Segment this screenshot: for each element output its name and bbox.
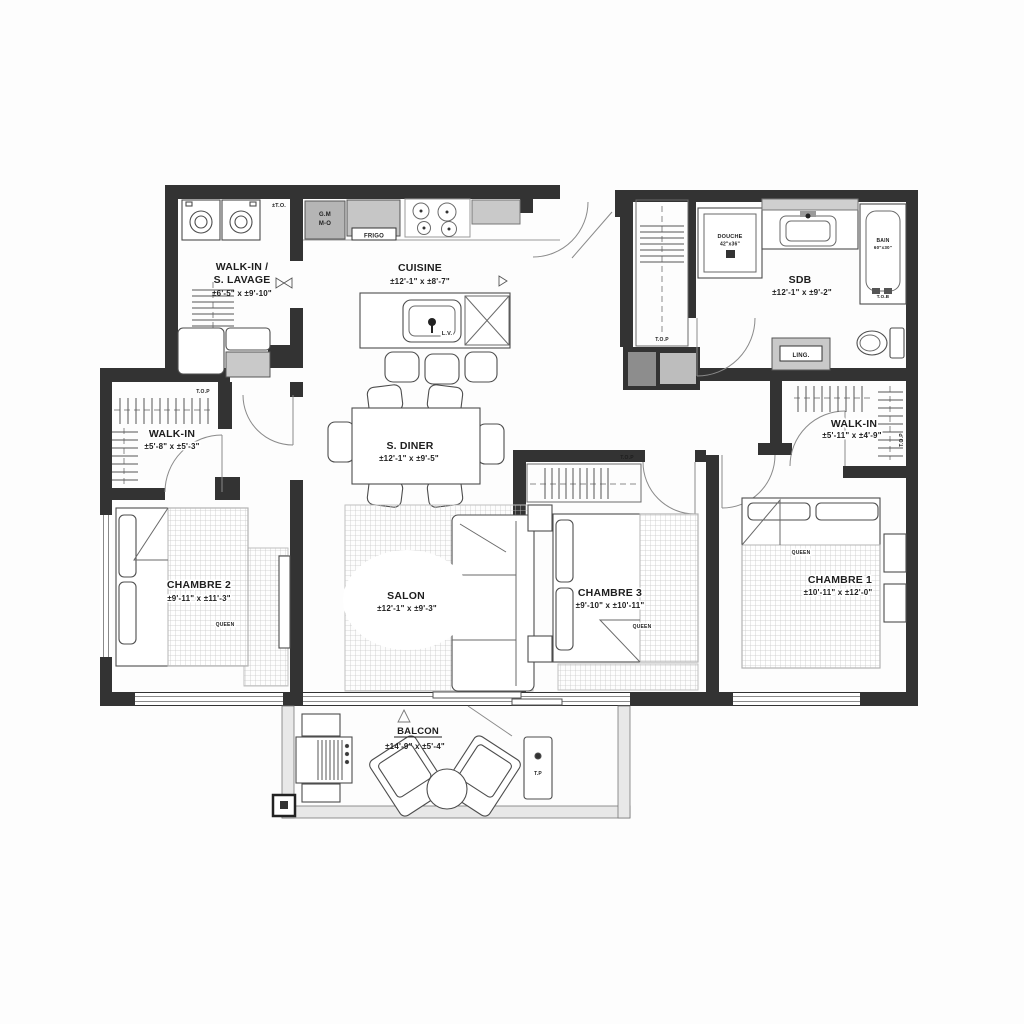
opening-marker (499, 276, 507, 286)
queen-label-chambre1: QUEEN (792, 550, 811, 556)
room-label-chambre2: CHAMBRE 2 (167, 579, 231, 591)
patio-table (427, 769, 467, 809)
microwave-label: M-O (319, 221, 331, 227)
dishwasher-label: L.V. (442, 331, 453, 337)
room-dims-cuisine: ±12'-1" x ±8'-7" (390, 277, 450, 286)
room-dims-sdb: ±12'-1" x ±9'-2" (772, 288, 832, 297)
room-label-balcon: BALCON (397, 726, 439, 737)
planter-box (524, 737, 552, 799)
room-dims-walkin-lavage: ±6'-5" x ±9'-10" (212, 289, 272, 298)
living-area (343, 505, 534, 691)
room-dims-chambre1: ±10'-11" x ±12'-0" (804, 588, 873, 597)
room-label-sdb: SDB (789, 274, 812, 286)
window-chambre2-bottom (135, 693, 283, 705)
bathtub-icon (860, 204, 906, 304)
toilet-icon (857, 328, 904, 358)
dresser (279, 556, 290, 648)
room-label-walkin-lavage: WALK-IN / (216, 261, 269, 273)
tob-label: T.O.B (877, 294, 890, 299)
room-dims-chambre3: ±9'-10" x ±10'-11" (576, 601, 645, 610)
patio-slider-leaf (512, 699, 562, 705)
top-label-walkin-left: T.O.P (196, 389, 210, 395)
room-dims-walkin-left: ±5'-8" x ±5'-3" (144, 442, 199, 451)
queen-label-chambre2: QUEEN (216, 622, 235, 628)
room-label-chambre1: CHAMBRE 1 (808, 574, 872, 586)
room-dims-salon: ±12'-1" x ±9'-3" (377, 604, 437, 613)
room-label-walkin-left: WALK-IN (149, 428, 195, 440)
kitchen (303, 199, 560, 384)
opening-marker (276, 278, 292, 288)
pantry-label: G.M (319, 212, 331, 218)
fridge-label: FRIGO (364, 234, 384, 240)
balcony-wall (282, 806, 630, 818)
stove-icon (405, 199, 470, 237)
pillow (119, 515, 136, 577)
storage-box (178, 328, 224, 374)
nightstand (884, 584, 906, 622)
room-label-sdiner: S. DINER (386, 440, 433, 452)
pillow (748, 503, 810, 520)
bar-stools (385, 352, 497, 384)
room-dims-balcon: ±14'-9" x ±5'-4" (385, 742, 445, 751)
room-label-walkin-lavage-2: S. LAVAGE (214, 274, 271, 286)
hall-closet (636, 200, 688, 346)
closet-chambre3 (527, 464, 641, 502)
floor-plan-page: { "plan": { "rooms": { "walkin_lavage": … (0, 0, 1024, 1024)
bathtub-label: BAIN (876, 238, 889, 244)
room-label-walkin-right: WALK-IN (831, 418, 877, 430)
floor-plan-svg: WALK-IN / S. LAVAGE ±6'-5" x ±9'-10" CUI… (0, 0, 1024, 1024)
chambre2-door (243, 395, 293, 445)
washer-dryer-icon (182, 200, 260, 240)
pillow (816, 503, 878, 520)
nightstand (884, 534, 906, 572)
planter-label: T.P (534, 771, 542, 777)
room-dims-chambre2: ±9'-11" x ±11'-3" (167, 594, 231, 603)
bathtub-size-label: 60"x30" (874, 245, 892, 250)
to-label: ±T.O. (272, 203, 286, 209)
top-label-hall: T.O.P (655, 337, 669, 343)
queen-label-chambre3: QUEEN (633, 624, 652, 630)
top-label-walkin-right: T.O.P (899, 433, 905, 447)
storage-box (226, 328, 270, 350)
bedroom3 (527, 464, 698, 690)
entry-door (533, 202, 612, 258)
window-chambre1-bottom (733, 693, 860, 705)
sdb-door (697, 318, 755, 376)
blanket (640, 514, 698, 662)
bbq-grill-icon (296, 714, 352, 802)
shower-size-label: 42"x36" (720, 242, 740, 248)
hangers-icon (798, 386, 862, 412)
pantry-microwave-cabinet (305, 201, 345, 239)
window-chambre2-left (100, 515, 112, 657)
kitchen-island (360, 293, 510, 348)
top-label-chambre3: T.O.P (620, 455, 634, 461)
nightstand (528, 505, 552, 531)
shower-label: DOUCHE (717, 234, 742, 240)
room-label-cuisine: CUISINE (398, 262, 442, 274)
door-swing-marker (398, 710, 410, 722)
nightstand (528, 636, 552, 662)
room-dims-sdiner: ±12'-1" x ±9'-5" (379, 454, 439, 463)
drain-icon (726, 250, 735, 258)
hangers-icon (112, 432, 138, 480)
patio-slider-leaf (433, 692, 521, 698)
room-label-chambre3: CHAMBRE 3 (578, 587, 642, 599)
hangers-icon (120, 398, 208, 424)
balcony-wall (618, 706, 630, 818)
blanket (742, 545, 880, 668)
linen-label: LING. (793, 353, 810, 359)
rug (558, 664, 698, 690)
room-label-salon: SALON (387, 590, 425, 602)
pillow (119, 582, 136, 644)
balcony (273, 706, 630, 818)
patio-door-band (303, 692, 630, 736)
storage-cabinet (226, 352, 270, 377)
pillow (556, 588, 573, 650)
pillow (556, 520, 573, 582)
counter-segment (472, 200, 520, 224)
chambre3-door (643, 462, 695, 517)
vanity-sink (762, 199, 858, 249)
room-dims-walkin-right: ±5'-11" x ±4'-9" (822, 431, 881, 440)
